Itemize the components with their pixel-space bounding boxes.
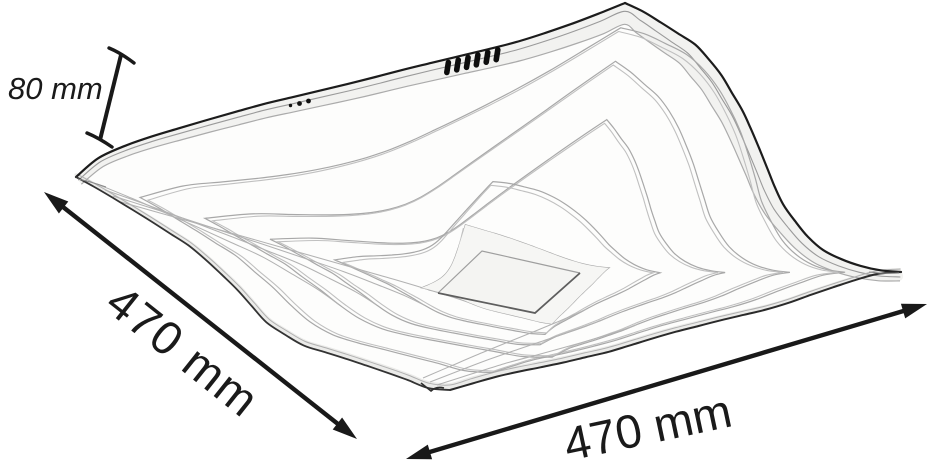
svg-text:80 mm: 80 mm [8,71,103,106]
